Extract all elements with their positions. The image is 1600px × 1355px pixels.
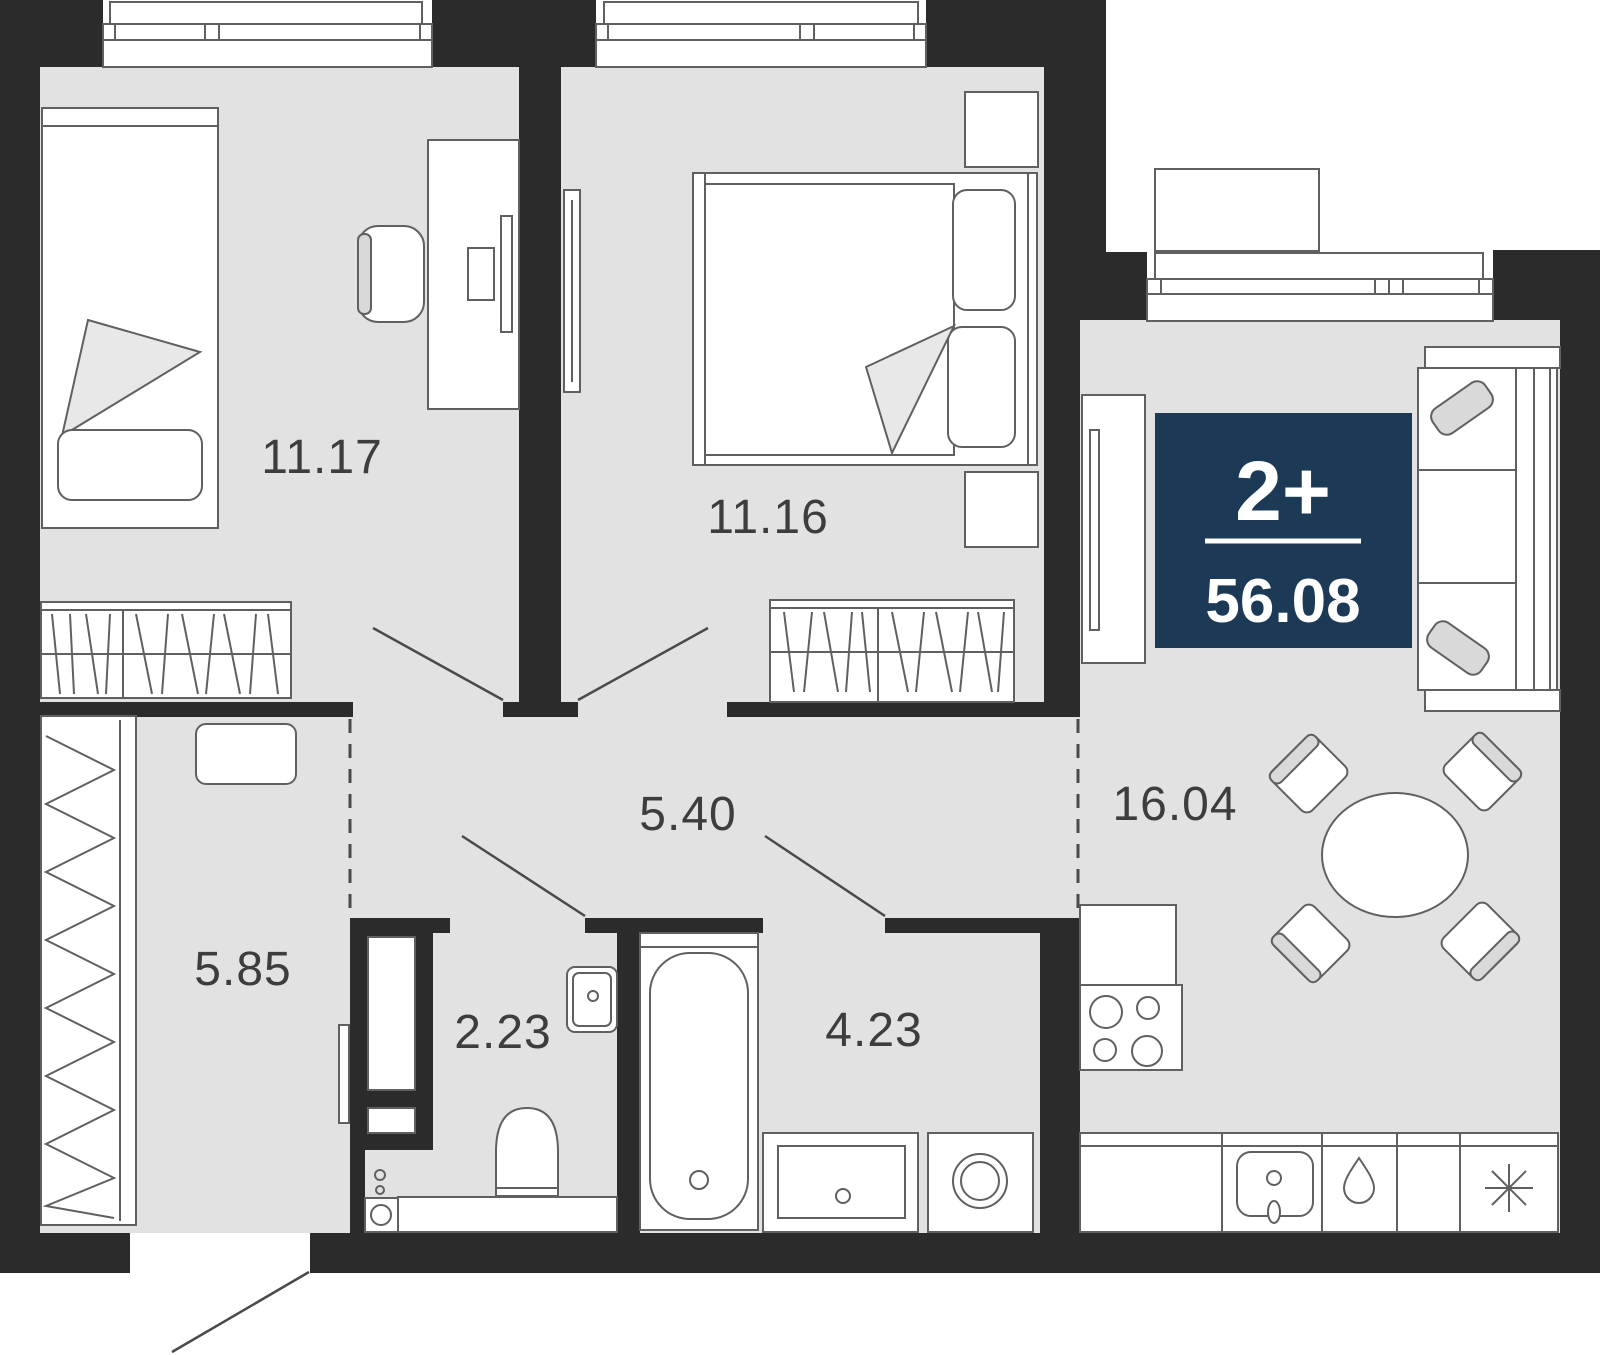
bedroom-2-window	[596, 2, 926, 67]
tall-cabinet	[1082, 395, 1145, 663]
wall-panel	[339, 1025, 349, 1123]
kitchen-living-area: 16.04	[1112, 778, 1237, 831]
bathroom-area: 4.23	[825, 1004, 922, 1057]
duct-niche-small	[368, 1108, 415, 1133]
bedroom-2-area: 11.16	[707, 491, 829, 544]
monitor	[501, 216, 512, 332]
hand-basin	[567, 967, 617, 1032]
badge-rooms-label: 2+	[1235, 444, 1331, 538]
nightstand	[965, 472, 1038, 547]
wardrobe	[770, 600, 1014, 702]
pillow	[953, 190, 1015, 310]
kitchen-cabinet	[1080, 905, 1176, 985]
duct-niche	[368, 937, 415, 1090]
sofa	[1418, 347, 1560, 711]
mirror	[564, 190, 580, 392]
washing-machine	[928, 1133, 1033, 1232]
round-table	[1322, 793, 1468, 917]
keyboard	[468, 248, 494, 300]
snowflake-icon	[1485, 1164, 1533, 1212]
vanity-sink	[763, 1133, 918, 1232]
desk-chair	[358, 226, 424, 322]
entrance-door	[172, 1272, 309, 1352]
desk	[428, 140, 519, 409]
pillow	[948, 327, 1015, 447]
bedroom-1-area: 11.17	[261, 431, 383, 484]
wardrobe	[41, 602, 291, 698]
double-bed	[693, 173, 1037, 465]
cooktop	[1080, 985, 1182, 1070]
kitchen-counter	[1080, 1133, 1558, 1232]
living-room-window	[1147, 169, 1493, 321]
floor-plan[interactable]: 11.17 11.16 5.40 16.04 5.85 2.23 4.23 2+…	[0, 0, 1600, 1355]
bedroom-1-window	[103, 2, 432, 67]
floor-plan-canvas: 11.17 11.16 5.40 16.04 5.85 2.23 4.23 2+…	[0, 0, 1600, 1355]
badge-total-area: 56.08	[1205, 567, 1360, 636]
coat-closet	[41, 716, 136, 1225]
counter	[398, 1197, 617, 1232]
bathtub	[640, 933, 758, 1230]
shelf	[196, 724, 296, 784]
area-badge: 2+ 56.08	[1155, 413, 1412, 648]
corridor-area: 5.40	[639, 788, 736, 841]
entry-hall-area: 5.85	[194, 943, 291, 996]
single-bed	[42, 108, 218, 528]
balcony-box	[1155, 169, 1319, 251]
nightstand	[965, 92, 1038, 167]
toilet	[496, 1108, 558, 1196]
toilet-area: 2.23	[454, 1006, 551, 1059]
